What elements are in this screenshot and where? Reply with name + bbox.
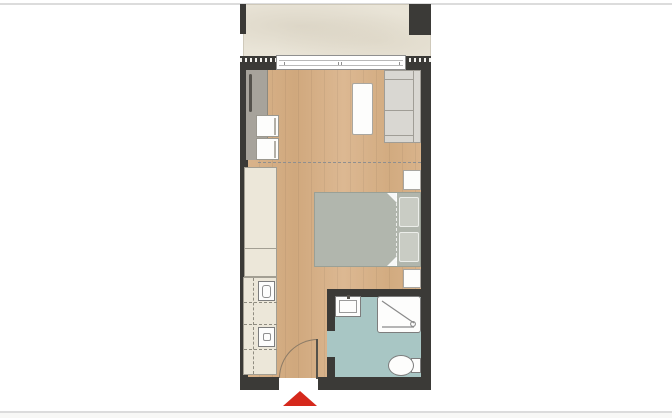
- balcony-wall-left: [240, 4, 246, 34]
- kitchen-cabinet-outline: [244, 324, 277, 325]
- nightstand-1: [403, 170, 421, 190]
- balcony-sliding-door: [276, 55, 406, 70]
- sofa-back-divider: [413, 71, 414, 142]
- sofa-armrest-top: [385, 79, 414, 80]
- cooktop: [258, 327, 275, 347]
- bathroom-wall-left-upper: [327, 289, 335, 331]
- kitchen-cabinet-outline: [244, 349, 277, 350]
- bed-pillow-1: [399, 197, 419, 227]
- bathroom-door-gap: [327, 331, 335, 357]
- balcony-floor: [243, 4, 431, 58]
- wardrobe-divider: [245, 248, 276, 249]
- wall-bottom-left: [240, 377, 279, 390]
- bathroom-wall-left-lower: [327, 357, 335, 390]
- entry-door-leaf: [316, 339, 318, 379]
- wall-right: [421, 63, 431, 390]
- chair-back-line: [274, 118, 276, 135]
- sliding-door-handle-mark: [399, 62, 400, 65]
- entrance-arrow: [283, 391, 317, 406]
- shower-drain-lines: [378, 297, 420, 332]
- desk-chair-1: [256, 115, 279, 137]
- washbasin: [335, 296, 361, 317]
- desk-chair-2: [256, 138, 279, 160]
- shower-tray: [377, 296, 421, 333]
- double-bed: [314, 192, 421, 267]
- desk-accessory: [249, 74, 252, 112]
- bed-corner-fold: [387, 193, 397, 203]
- floor-plan: [0, 0, 672, 418]
- bed-pillow-2: [399, 232, 419, 262]
- kitchen-cabinet-outline: [253, 278, 254, 374]
- toilet: [388, 354, 422, 377]
- coffee-table: [352, 83, 373, 135]
- sliding-door-handle-mark: [284, 62, 285, 65]
- toilet-bowl: [388, 355, 414, 376]
- washbasin-inner: [339, 300, 357, 313]
- bed-corner-fold: [387, 256, 397, 266]
- sliding-door-handle-mark: [341, 62, 342, 65]
- nightstand-2: [403, 269, 421, 288]
- sliding-door-handle-mark: [338, 62, 339, 65]
- ceiling-track-line: [258, 162, 421, 163]
- sofa-cushion-divider: [385, 110, 414, 111]
- sofa-armrest-bottom: [385, 135, 414, 136]
- balcony-column-right: [409, 4, 431, 35]
- cooktop-burner: [263, 333, 271, 341]
- sliding-door-glass-line: [279, 60, 403, 61]
- chair-back-line: [274, 141, 276, 158]
- faucet-icon: [347, 295, 350, 299]
- wardrobe: [244, 167, 277, 277]
- sink-basin: [262, 285, 271, 298]
- kitchen-cabinet-outline: [244, 302, 277, 303]
- sliding-door-glass-line: [279, 65, 403, 66]
- sofa: [384, 70, 421, 143]
- kitchen-sink: [258, 281, 275, 301]
